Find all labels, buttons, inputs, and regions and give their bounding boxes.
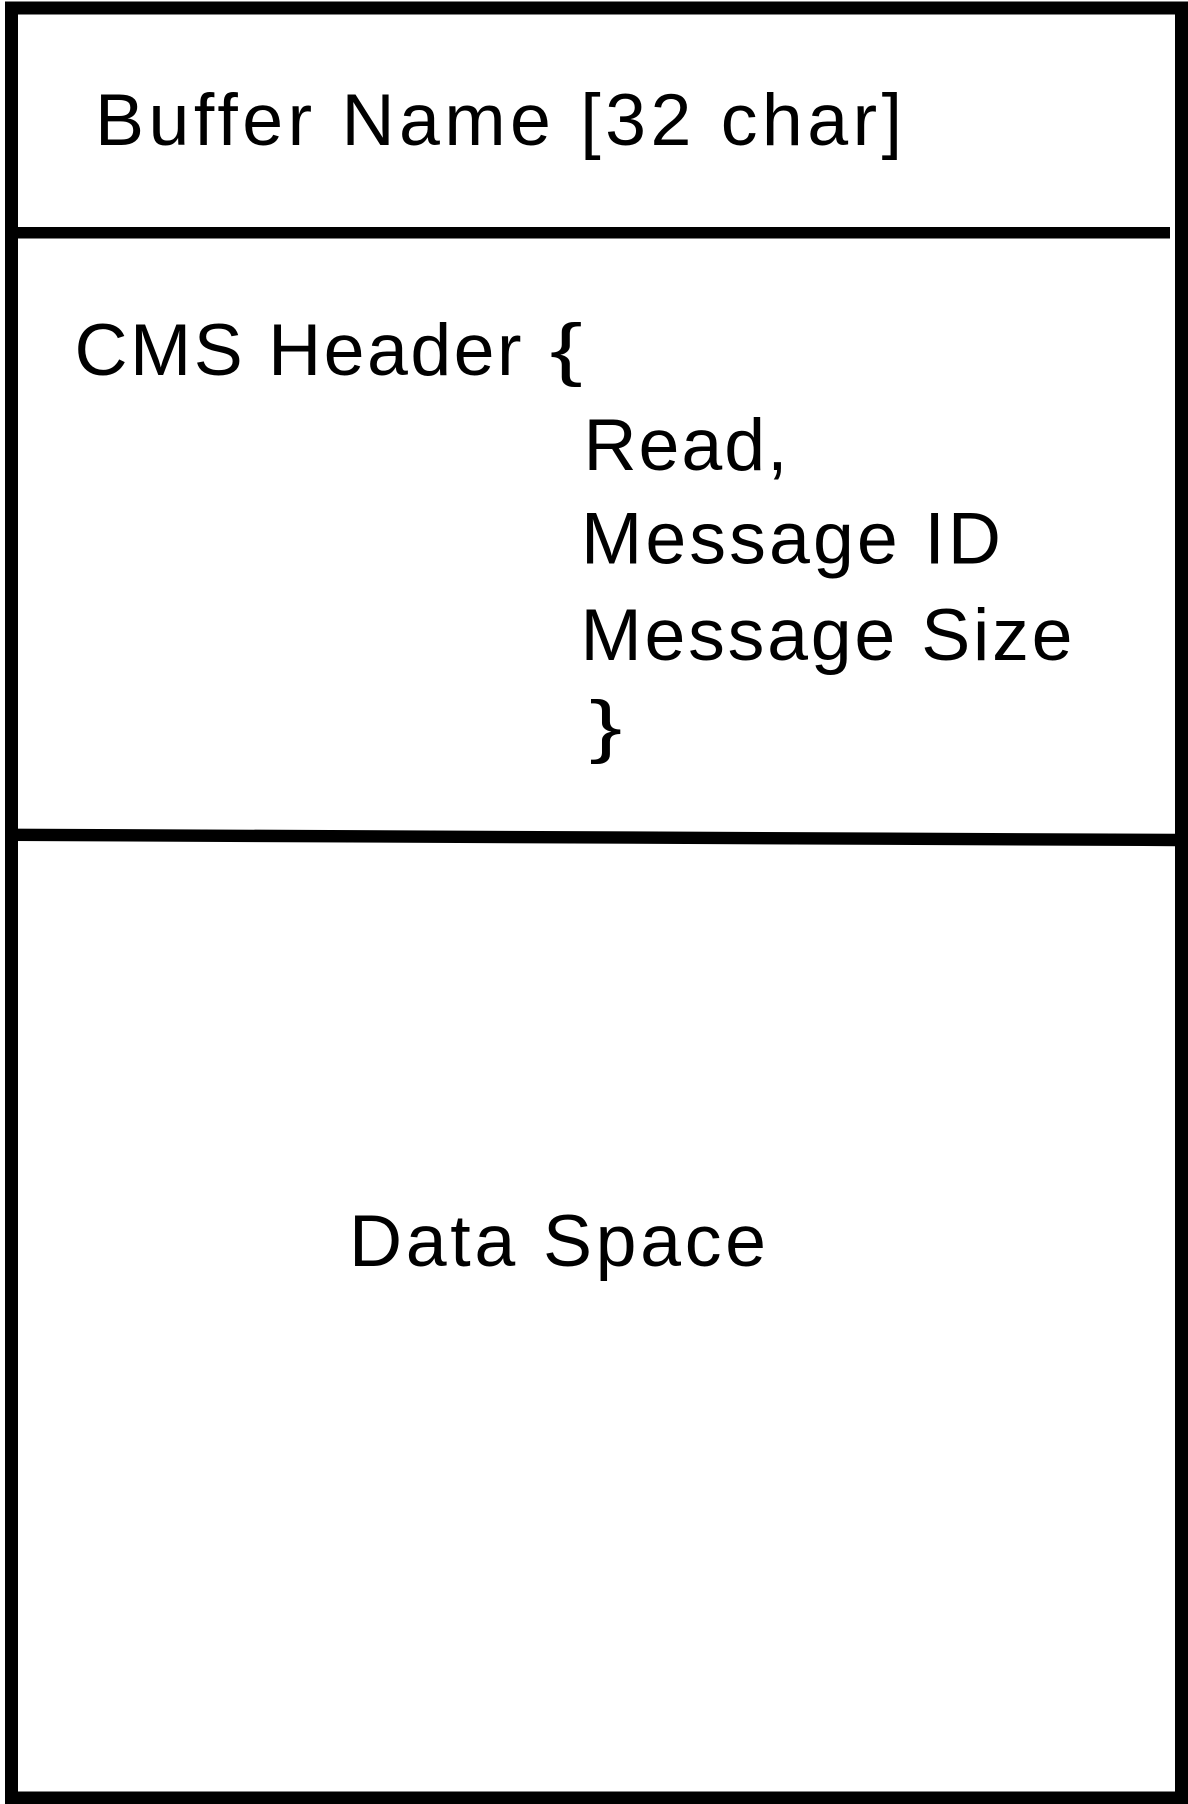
- svg-text:CMS Header: CMS Header: [75, 308, 522, 391]
- svg-text:{: {: [550, 309, 583, 387]
- svg-text:Message Size: Message Size: [581, 593, 1073, 676]
- svg-text:}: }: [589, 687, 622, 765]
- svg-text:Data Space: Data Space: [349, 1199, 766, 1282]
- svg-text:Read,: Read,: [584, 403, 788, 486]
